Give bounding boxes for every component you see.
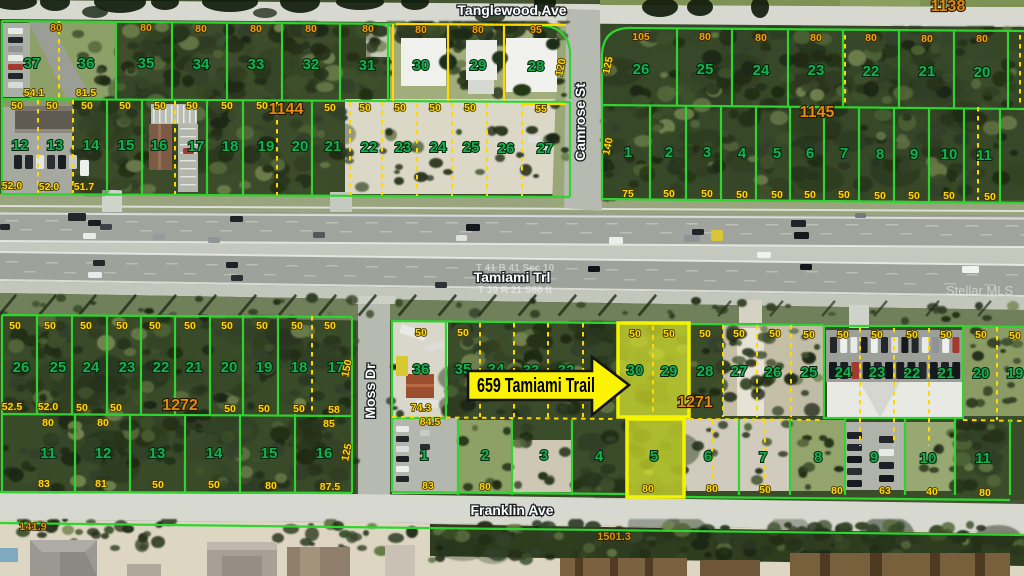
svg-text:40: 40 [926, 486, 938, 498]
svg-text:80: 80 [97, 417, 109, 429]
svg-text:50: 50 [291, 320, 303, 332]
svg-text:24: 24 [753, 62, 770, 79]
svg-text:50: 50 [9, 320, 21, 332]
svg-text:5: 5 [650, 448, 658, 465]
svg-text:80: 80 [140, 22, 152, 34]
svg-text:25: 25 [697, 61, 714, 78]
svg-text:50: 50 [663, 328, 675, 340]
svg-text:50: 50 [803, 329, 815, 341]
svg-text:23: 23 [808, 62, 825, 79]
svg-text:7: 7 [840, 145, 848, 162]
svg-text:50: 50 [906, 329, 918, 341]
svg-text:50: 50 [81, 100, 93, 112]
svg-text:1144: 1144 [269, 101, 304, 118]
svg-text:50: 50 [119, 100, 131, 112]
svg-text:50: 50 [464, 102, 476, 114]
svg-text:80: 80 [921, 33, 933, 45]
svg-text:22: 22 [904, 365, 921, 382]
svg-text:50: 50 [208, 479, 220, 491]
svg-text:83: 83 [422, 480, 434, 492]
svg-text:74.3: 74.3 [411, 402, 432, 414]
svg-text:80: 80 [415, 24, 427, 36]
svg-text:12: 12 [95, 445, 112, 462]
svg-text:50: 50 [736, 189, 748, 201]
svg-text:16: 16 [151, 137, 168, 154]
svg-text:28: 28 [697, 363, 714, 380]
svg-text:25: 25 [463, 139, 480, 156]
svg-text:50: 50 [110, 402, 122, 414]
svg-text:1138: 1138 [931, 0, 966, 15]
svg-text:50: 50 [908, 190, 920, 202]
svg-text:Camrose St: Camrose St [572, 83, 588, 161]
svg-text:6: 6 [806, 145, 814, 162]
svg-text:1: 1 [420, 447, 428, 464]
svg-text:50: 50 [76, 402, 88, 414]
svg-text:31: 31 [359, 57, 376, 74]
svg-text:50: 50 [771, 189, 783, 201]
svg-text:50: 50 [256, 100, 268, 112]
svg-text:52.0: 52.0 [38, 401, 59, 413]
svg-text:50: 50 [359, 102, 371, 114]
svg-text:28: 28 [528, 58, 545, 75]
svg-text:80: 80 [305, 23, 317, 35]
svg-text:30: 30 [413, 57, 430, 74]
svg-text:50: 50 [975, 329, 987, 341]
svg-text:20: 20 [221, 359, 238, 376]
svg-text:80: 80 [50, 22, 62, 34]
svg-text:55: 55 [535, 103, 547, 115]
svg-text:75: 75 [622, 188, 634, 200]
svg-text:3: 3 [540, 447, 548, 464]
svg-text:21: 21 [938, 365, 955, 382]
svg-text:80: 80 [642, 483, 654, 495]
svg-text:8: 8 [876, 146, 884, 163]
svg-text:80: 80 [810, 32, 822, 44]
svg-text:80: 80 [976, 33, 988, 45]
svg-text:105: 105 [632, 31, 650, 43]
svg-text:Franklin Ave: Franklin Ave [471, 502, 554, 518]
svg-text:50: 50 [804, 189, 816, 201]
svg-text:50: 50 [324, 320, 336, 332]
svg-text:26: 26 [13, 359, 30, 376]
svg-text:4: 4 [595, 448, 604, 465]
svg-text:50: 50 [324, 102, 336, 114]
svg-text:659 Tamiami Trail: 659 Tamiami Trail [477, 375, 595, 397]
svg-text:85: 85 [323, 418, 335, 430]
svg-text:27: 27 [537, 140, 554, 157]
svg-text:18: 18 [222, 138, 239, 155]
svg-text:13: 13 [149, 445, 166, 462]
svg-text:50: 50 [663, 188, 675, 200]
svg-text:50: 50 [224, 403, 236, 415]
svg-text:50: 50 [11, 100, 23, 112]
svg-text:T 39 R 21 S88 ft: T 39 R 21 S88 ft [478, 285, 553, 296]
svg-text:84.5: 84.5 [420, 416, 441, 428]
svg-text:80: 80 [42, 417, 54, 429]
svg-text:1: 1 [624, 144, 632, 161]
svg-text:50: 50 [701, 188, 713, 200]
svg-text:50: 50 [838, 189, 850, 201]
svg-text:24: 24 [430, 139, 447, 156]
svg-text:1272: 1272 [162, 397, 198, 414]
svg-text:24: 24 [83, 359, 100, 376]
svg-text:22: 22 [153, 359, 170, 376]
svg-text:19: 19 [256, 359, 273, 376]
svg-text:33: 33 [248, 56, 265, 73]
svg-text:27: 27 [731, 363, 748, 380]
svg-text:32: 32 [303, 56, 320, 73]
svg-text:Stellar MLS: Stellar MLS [946, 283, 1014, 298]
svg-text:21: 21 [325, 138, 342, 155]
svg-text:50: 50 [1009, 330, 1021, 342]
svg-text:24: 24 [835, 364, 852, 381]
svg-text:80: 80 [699, 31, 711, 43]
svg-text:83: 83 [38, 478, 50, 490]
svg-text:25: 25 [801, 364, 818, 381]
svg-text:80: 80 [831, 485, 843, 497]
svg-text:50: 50 [184, 320, 196, 332]
svg-text:50: 50 [44, 320, 56, 332]
svg-text:8: 8 [814, 449, 822, 466]
svg-text:20: 20 [292, 138, 309, 155]
svg-text:50: 50 [457, 327, 469, 339]
svg-text:50: 50 [80, 320, 92, 332]
svg-text:19: 19 [258, 138, 275, 155]
svg-text:11: 11 [976, 147, 992, 164]
svg-text:26: 26 [765, 364, 782, 381]
svg-text:81.5: 81.5 [76, 87, 97, 99]
svg-text:50: 50 [874, 190, 886, 202]
svg-text:11: 11 [975, 450, 991, 467]
svg-text:12: 12 [12, 137, 29, 154]
svg-text:50: 50 [154, 100, 166, 112]
svg-text:80: 80 [479, 481, 491, 493]
svg-text:36: 36 [413, 361, 430, 378]
svg-text:50: 50 [293, 403, 305, 415]
svg-text:50: 50 [149, 320, 161, 332]
svg-text:50: 50 [940, 329, 952, 341]
svg-text:14: 14 [83, 137, 100, 154]
svg-text:Moss Dr: Moss Dr [362, 363, 378, 419]
svg-text:34: 34 [193, 56, 210, 73]
svg-text:2: 2 [481, 447, 489, 464]
svg-text:52.0: 52.0 [39, 181, 60, 193]
svg-text:50: 50 [733, 328, 745, 340]
svg-text:50: 50 [871, 329, 883, 341]
svg-text:20: 20 [973, 365, 990, 382]
svg-text:50: 50 [221, 100, 233, 112]
svg-text:80: 80 [265, 480, 277, 492]
svg-text:29: 29 [661, 363, 678, 380]
svg-text:50: 50 [46, 100, 58, 112]
svg-text:50: 50 [394, 102, 406, 114]
svg-text:50: 50 [152, 479, 164, 491]
svg-text:50: 50 [699, 328, 711, 340]
svg-text:22: 22 [863, 63, 880, 80]
svg-text:50: 50 [837, 329, 849, 341]
svg-text:16: 16 [316, 445, 333, 462]
svg-text:11: 11 [40, 445, 56, 462]
svg-text:13: 13 [47, 137, 64, 154]
svg-text:52.5: 52.5 [2, 401, 23, 413]
svg-text:Tanglewood Ave: Tanglewood Ave [457, 2, 566, 18]
svg-text:80: 80 [250, 23, 262, 35]
svg-text:36: 36 [78, 55, 95, 72]
svg-text:15: 15 [118, 137, 135, 154]
svg-text:95: 95 [530, 24, 542, 36]
svg-text:54.1: 54.1 [24, 87, 45, 99]
svg-text:80: 80 [195, 23, 207, 35]
svg-text:30: 30 [627, 362, 644, 379]
svg-text:26: 26 [633, 61, 650, 78]
svg-text:63: 63 [879, 485, 891, 497]
svg-text:37: 37 [24, 55, 41, 72]
svg-text:29: 29 [470, 57, 487, 74]
svg-text:51.7: 51.7 [74, 181, 95, 193]
svg-text:58: 58 [328, 404, 340, 416]
svg-text:50: 50 [116, 320, 128, 332]
svg-text:23: 23 [395, 139, 412, 156]
svg-text:50: 50 [221, 320, 233, 332]
svg-text:15: 15 [261, 445, 278, 462]
svg-text:21: 21 [919, 63, 936, 80]
svg-text:50: 50 [258, 403, 270, 415]
svg-text:10: 10 [920, 450, 937, 467]
svg-text:19: 19 [1007, 365, 1024, 382]
svg-text:14: 14 [206, 445, 223, 462]
svg-text:9: 9 [910, 146, 918, 163]
svg-text:50: 50 [256, 320, 268, 332]
svg-text:23: 23 [119, 359, 136, 376]
svg-text:50: 50 [415, 327, 427, 339]
svg-text:22: 22 [361, 139, 378, 156]
svg-text:20: 20 [974, 64, 991, 81]
svg-text:18: 18 [291, 359, 308, 376]
svg-text:1145: 1145 [800, 104, 835, 121]
svg-text:50: 50 [186, 100, 198, 112]
svg-text:7: 7 [759, 449, 767, 466]
svg-text:141.9: 141.9 [19, 521, 47, 533]
svg-text:25: 25 [50, 359, 67, 376]
svg-text:5: 5 [773, 145, 781, 162]
svg-text:80: 80 [472, 24, 484, 36]
svg-text:1501.3: 1501.3 [597, 531, 631, 543]
svg-text:4: 4 [738, 145, 747, 162]
svg-text:35: 35 [138, 55, 155, 72]
svg-text:10: 10 [941, 146, 958, 163]
svg-text:50: 50 [629, 328, 641, 340]
svg-text:80: 80 [706, 483, 718, 495]
svg-text:3: 3 [703, 144, 711, 161]
svg-text:23: 23 [869, 364, 886, 381]
svg-text:80: 80 [362, 23, 374, 35]
svg-text:80: 80 [755, 32, 767, 44]
svg-text:81: 81 [95, 478, 107, 490]
svg-text:50: 50 [759, 484, 771, 496]
svg-text:6: 6 [704, 448, 712, 465]
svg-text:17: 17 [188, 138, 205, 155]
svg-text:80: 80 [865, 32, 877, 44]
svg-text:87.5: 87.5 [320, 481, 341, 493]
svg-text:1271: 1271 [677, 394, 713, 411]
svg-text:2: 2 [665, 144, 673, 161]
svg-text:T 41 B 41 Sec 10: T 41 B 41 Sec 10 [476, 263, 555, 274]
svg-text:50: 50 [943, 190, 955, 202]
svg-text:26: 26 [498, 140, 515, 157]
svg-text:80: 80 [979, 487, 991, 499]
svg-text:50: 50 [429, 102, 441, 114]
svg-text:50: 50 [769, 328, 781, 340]
svg-text:21: 21 [186, 359, 203, 376]
svg-text:9: 9 [870, 449, 878, 466]
svg-text:52.0: 52.0 [2, 180, 23, 192]
svg-text:50: 50 [984, 191, 996, 203]
